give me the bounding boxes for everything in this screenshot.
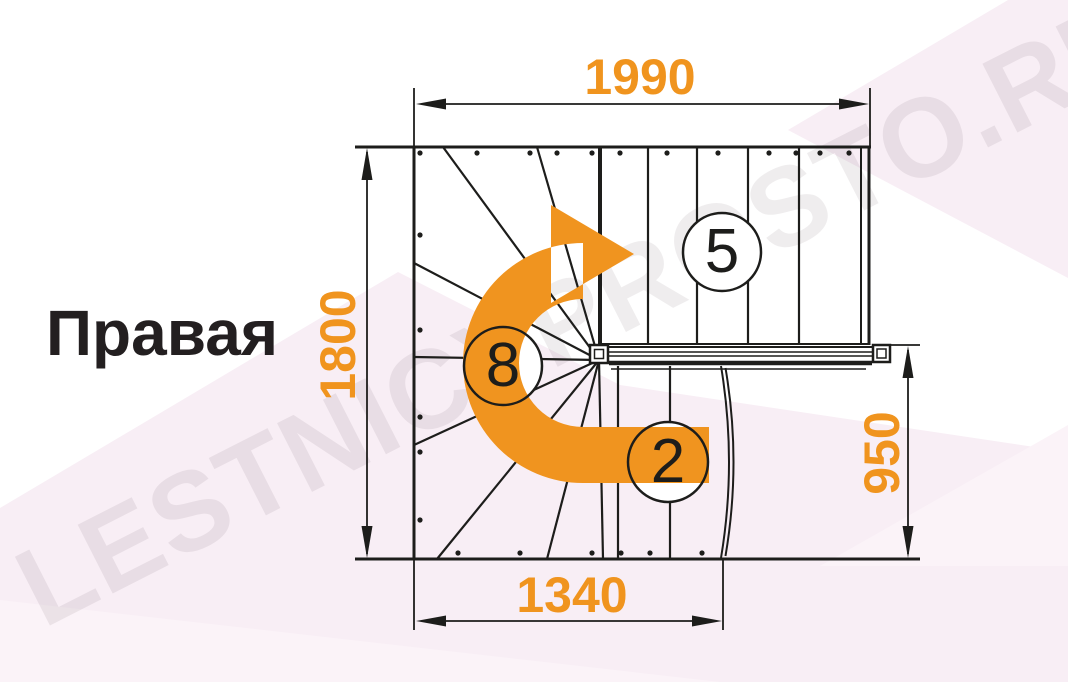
- staircase-outline: [355, 88, 920, 630]
- arrowhead-left-icon: [416, 616, 446, 627]
- newel-post-right: [873, 345, 890, 362]
- arrowhead-up-icon: [362, 148, 373, 180]
- dimension-top-value: 1990: [558, 48, 722, 106]
- arrowhead-right-icon: [692, 616, 722, 627]
- top-flight-step-count: 5: [690, 220, 754, 284]
- winder-step-count: 8: [471, 334, 535, 398]
- staircase-plan-figure: LESTNICYPROSTO.RU: [0, 0, 1068, 682]
- dimension-right-value: 950: [853, 371, 911, 535]
- dimension-left-value: 1800: [309, 263, 367, 427]
- curved-stringer-edge: [721, 366, 729, 558]
- newel-post-left: [590, 345, 608, 363]
- arrowhead-right-icon: [839, 99, 869, 110]
- arrowhead-left-icon: [416, 99, 446, 110]
- bottom-flight-step-count: 2: [636, 430, 700, 494]
- orientation-title: Правая: [46, 300, 286, 366]
- arrowhead-down-icon: [362, 526, 373, 558]
- dimension-bottom-value: 1340: [490, 566, 654, 624]
